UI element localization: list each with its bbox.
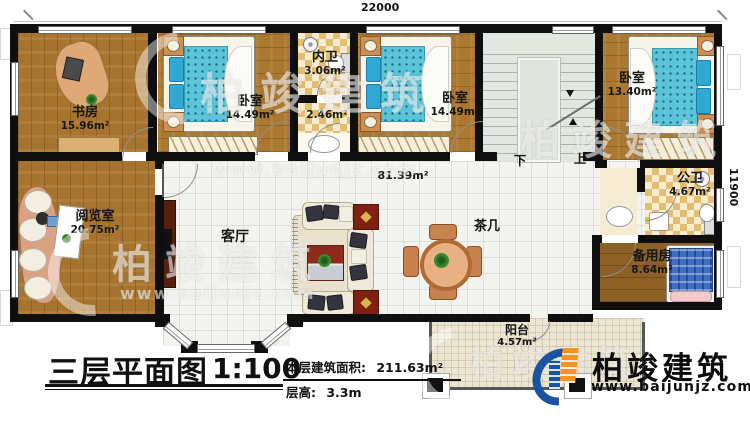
nightstand bbox=[360, 36, 381, 56]
bedroom1-mattress bbox=[184, 46, 228, 122]
wall bbox=[157, 152, 255, 161]
stair-stringer bbox=[518, 58, 560, 162]
wall bbox=[350, 24, 358, 161]
room-label-bedroom3: 卧室 13.40m² bbox=[608, 72, 657, 98]
side-table bbox=[353, 204, 379, 230]
bedroom3-wardrobe bbox=[642, 137, 714, 160]
dimension-box bbox=[727, 246, 741, 288]
wall bbox=[10, 314, 157, 322]
window bbox=[11, 62, 19, 116]
window bbox=[612, 26, 706, 34]
wall bbox=[638, 235, 722, 243]
side-table bbox=[353, 290, 379, 316]
wall bbox=[640, 160, 722, 168]
dimension-right: 11900 bbox=[727, 168, 740, 206]
tea-chair bbox=[403, 246, 419, 277]
room-label-public-bath: 公卫 4.67m² bbox=[669, 172, 710, 198]
title-underline bbox=[45, 384, 283, 387]
window bbox=[11, 250, 19, 298]
bedroom2-mattress bbox=[381, 46, 425, 122]
wall bbox=[290, 95, 317, 103]
dimension-box bbox=[727, 54, 741, 90]
room-label-balcony: 阳台 4.57m² bbox=[497, 324, 536, 349]
dimension-top: 22000 bbox=[361, 1, 399, 14]
spare-bed-pillow bbox=[670, 291, 712, 302]
floor-area-stat: 本层建筑面积: 211.63m² bbox=[286, 357, 443, 376]
logo-tower-blue bbox=[549, 361, 560, 389]
floor-plan-page: { "dimensions": { "top": "22000", "right… bbox=[0, 0, 750, 403]
vanity-sink bbox=[606, 206, 633, 227]
stair-arrow-up bbox=[569, 118, 577, 125]
brand-website: www.baijunjz.com bbox=[591, 379, 750, 395]
room-label-corridor: 2.46m² bbox=[306, 110, 347, 122]
dimension-line bbox=[14, 21, 722, 22]
dimension-tick bbox=[717, 10, 727, 20]
wall bbox=[340, 152, 450, 161]
wall bbox=[595, 160, 607, 168]
tea-table-label: 茶几 bbox=[474, 220, 500, 235]
wall bbox=[637, 168, 645, 192]
room-label-spare: 备用房 8.64m² bbox=[631, 250, 672, 276]
room-label-reading: 阅览室 20.75m² bbox=[71, 210, 120, 236]
wall bbox=[342, 95, 358, 103]
brand-logo-icon bbox=[534, 341, 588, 399]
wall bbox=[592, 235, 600, 310]
window bbox=[716, 250, 724, 298]
nightstand bbox=[360, 112, 381, 132]
rug-plant bbox=[318, 254, 331, 267]
stair-down-label: 下 bbox=[514, 154, 527, 168]
dimension-tick bbox=[23, 10, 33, 20]
room-label-living: 客厅 bbox=[221, 230, 249, 246]
window bbox=[716, 188, 724, 222]
wall bbox=[288, 152, 308, 161]
tea-chair bbox=[429, 224, 457, 240]
wall bbox=[290, 24, 298, 161]
room-label-bedroom2: 卧室 14.49m² bbox=[431, 92, 480, 118]
title-underline-thin bbox=[45, 389, 283, 390]
room-label-study: 书房 15.96m² bbox=[61, 106, 110, 132]
floor-height-stat: 层高: 3.3m bbox=[286, 382, 362, 401]
window bbox=[172, 26, 266, 34]
window bbox=[552, 26, 594, 34]
wall bbox=[592, 302, 722, 310]
window bbox=[38, 26, 132, 34]
wall bbox=[155, 195, 164, 322]
wall bbox=[288, 314, 530, 322]
wall bbox=[483, 152, 497, 161]
stair-up-label: 上 bbox=[574, 152, 587, 166]
living-area-value: 81.39m² bbox=[377, 170, 428, 182]
spare-bed-mattress bbox=[669, 248, 713, 292]
toilet-bowl bbox=[699, 204, 715, 222]
stair-arrow-down bbox=[566, 90, 574, 97]
tea-table-plant bbox=[434, 253, 449, 268]
bedroom3-mattress bbox=[652, 48, 698, 126]
window bbox=[366, 26, 460, 34]
wall bbox=[10, 152, 122, 161]
wall bbox=[548, 314, 593, 322]
stat-divider bbox=[283, 379, 461, 381]
window bbox=[716, 46, 724, 126]
study-plant bbox=[86, 94, 97, 105]
nightstand bbox=[163, 36, 184, 56]
door-leaf bbox=[162, 164, 164, 197]
room-label-bedroom1: 卧室 14.49m² bbox=[226, 95, 275, 121]
room-label-inner-bath: 内卫 3.06m² bbox=[304, 51, 345, 77]
nightstand bbox=[163, 112, 184, 132]
